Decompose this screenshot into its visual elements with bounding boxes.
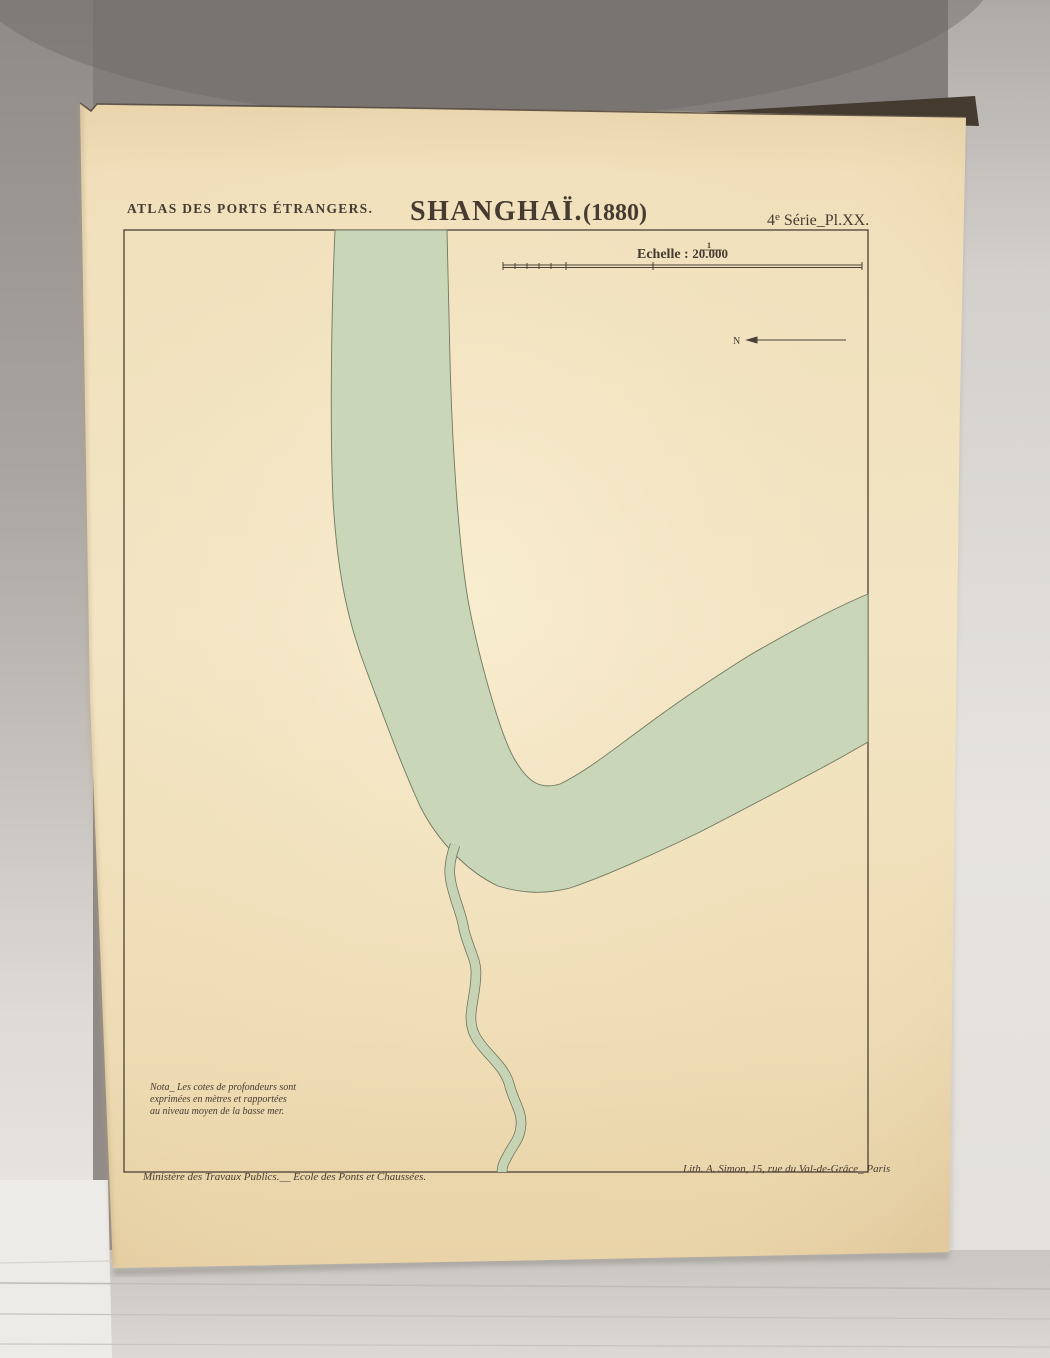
svg-text:au niveau moyen de la basse me: au niveau moyen de la basse mer. — [150, 1106, 284, 1117]
svg-text:exprimées en mètres et rapport: exprimées en mètres et rapportées — [150, 1094, 287, 1105]
svg-text:Echelle : 20.000: Echelle : 20.000 — [637, 246, 728, 262]
svg-text:1: 1 — [707, 241, 711, 250]
svg-text:N: N — [733, 336, 740, 347]
svg-text:Lith. A. Simon, 15, rue du Val: Lith. A. Simon, 15, rue du Val-de-Grâce_… — [682, 1163, 890, 1175]
svg-text:Nota_ Les cotes de profondeurs: Nota_ Les cotes de profondeurs sont — [149, 1082, 296, 1093]
svg-text:Ministère des Travaux Publics.: Ministère des Travaux Publics.__ Ecole d… — [142, 1171, 426, 1183]
svg-text:SHANGHAÏ.(1880): SHANGHAÏ.(1880) — [410, 196, 647, 227]
svg-text:ATLAS DES PORTS ÉTRANGERS.: ATLAS DES PORTS ÉTRANGERS. — [127, 201, 373, 216]
svg-text:4e Série_Pl.XX.: 4e Série_Pl.XX. — [767, 211, 869, 229]
